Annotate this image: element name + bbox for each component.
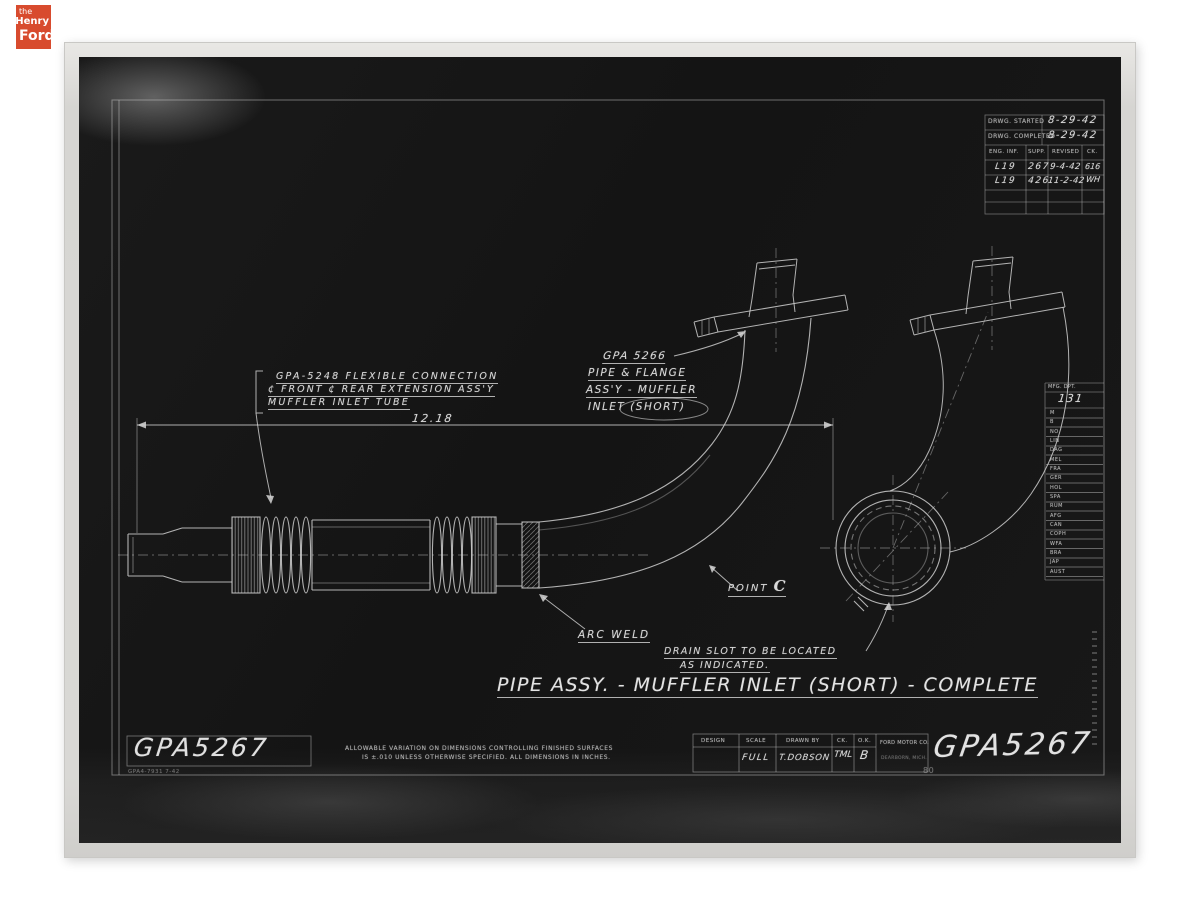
drwg-started-value: 8-29-42 — [1047, 115, 1098, 126]
flex-connection-note-line3: MUFFLER INLET TUBE — [268, 397, 410, 410]
flex-connection-note-line1: GPA-5248 FLEXIBLE CONNECTION — [276, 371, 498, 384]
tolerance-note-line2: IS ±.010 UNLESS OTHERWISE SPECIFIED. ALL… — [362, 754, 611, 761]
rev-col-ck: CK. — [1087, 149, 1098, 155]
rev-row-supp: 267 — [1027, 162, 1050, 172]
point-letter: C — [774, 577, 786, 595]
titleblock-col-design: DESIGN — [701, 738, 725, 744]
titleblock-col-drawnby: DRAWN BY — [786, 738, 819, 744]
logo-text-the: the — [19, 7, 32, 16]
mfg-branch-codes: M B NO LIN DAG MEL FRA GER HOL SPA RUM A… — [1046, 409, 1103, 577]
rev-row-ck: 616 — [1084, 162, 1100, 171]
titleblock-ck-value: TML — [833, 750, 853, 760]
pipe-flange-note-line4: INLET (SHORT) — [588, 401, 685, 413]
rev-col-revised: REVISED — [1052, 149, 1079, 155]
drwg-started-label: DRWG. STARTED — [988, 118, 1044, 125]
arc-weld-callout: ARC WELD — [578, 629, 650, 643]
drwg-completed-value: 8-29-42 — [1047, 130, 1098, 141]
logo-text-henry: Henry — [15, 16, 49, 27]
henry-ford-logo: the Henry Ford — [16, 5, 51, 49]
titleblock-drawnby-value: T.DOBSON — [778, 753, 830, 763]
sheet-stamp: 80 — [923, 766, 934, 775]
overall-dimension-label: 12.18 — [411, 412, 454, 425]
logo-text-ford: Ford — [19, 28, 55, 44]
mfg-dept-header: MFG. DPT. — [1048, 384, 1076, 390]
titleblock-ok-value: B — [859, 748, 870, 762]
point-c-callout: POINT C — [728, 577, 786, 597]
form-number: GPA4-7931 7-42 — [128, 769, 180, 775]
rev-row-revised: 11-2-42 — [1047, 176, 1085, 186]
rev-row-eng-inf: L19 — [994, 176, 1016, 186]
titleblock-scale-value: FULL — [741, 753, 770, 763]
drain-slot-note-line1: DRAIN SLOT TO BE LOCATED — [664, 646, 837, 659]
rev-col-supp: SUPP. — [1028, 149, 1046, 155]
flex-connection-note-line2: ¢ FRONT ¢ REAR EXTENSION ASS'Y — [268, 384, 495, 397]
drawing-number-right: GPA5267 — [931, 726, 1095, 765]
mfg-dept-number: 131 — [1057, 392, 1084, 405]
rev-col-eng-inf: ENG. INF. — [989, 149, 1019, 155]
drawing-number-left: GPA5267 — [132, 733, 270, 762]
scanned-blueprint-page: the Henry Ford — [0, 0, 1200, 900]
pipe-flange-note-line2: PIPE & FLANGE — [588, 367, 686, 381]
tolerance-note-line1: ALLOWABLE VARIATION ON DIMENSIONS CONTRO… — [345, 745, 613, 752]
drwg-completed-label: DRWG. COMPLETED — [988, 133, 1055, 140]
company-city: DEARBORN, MICH. — [881, 756, 927, 761]
illegible-vertical-stamp — [1092, 630, 1097, 745]
point-label: POINT — [728, 583, 768, 594]
rev-row-ck: WH — [1085, 175, 1100, 184]
titleblock-col-ck: CK. — [837, 738, 848, 744]
rev-row-eng-inf: L19 — [994, 162, 1016, 172]
titleblock-col-scale: SCALE — [746, 738, 766, 744]
titleblock-col-ok: O.K. — [858, 738, 871, 744]
rev-row-revised: 9-4-42 — [1049, 162, 1081, 172]
drain-slot-note-line2: AS INDICATED. — [680, 660, 770, 673]
drawing-title: PIPE ASSY. - MUFFLER INLET (SHORT) - COM… — [497, 674, 1038, 698]
blueprint-film — [79, 57, 1121, 843]
pipe-flange-note-line1: GPA 5266 — [602, 350, 667, 364]
pipe-flange-note-line3: ASS'Y - MUFFLER — [586, 384, 697, 398]
company-name: FORD MOTOR CO. — [880, 740, 929, 746]
